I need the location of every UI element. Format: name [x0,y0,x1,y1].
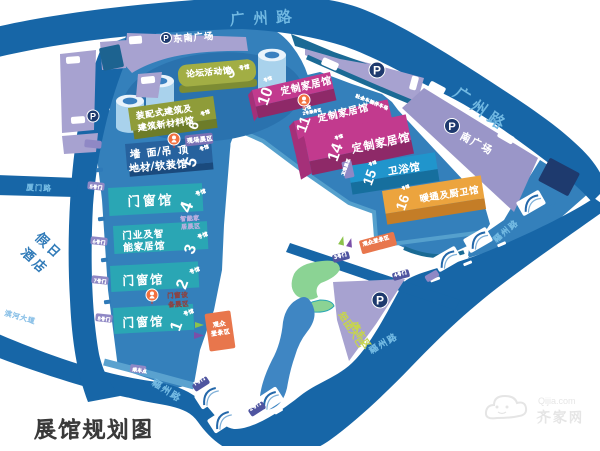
svg-text:P: P [448,121,456,133]
svg-text:P: P [90,111,96,121]
svg-text:P: P [376,293,384,307]
svg-text:Qijia.com: Qijia.com [538,396,576,406]
svg-text:P: P [373,63,381,77]
svg-text:P: P [163,34,169,43]
